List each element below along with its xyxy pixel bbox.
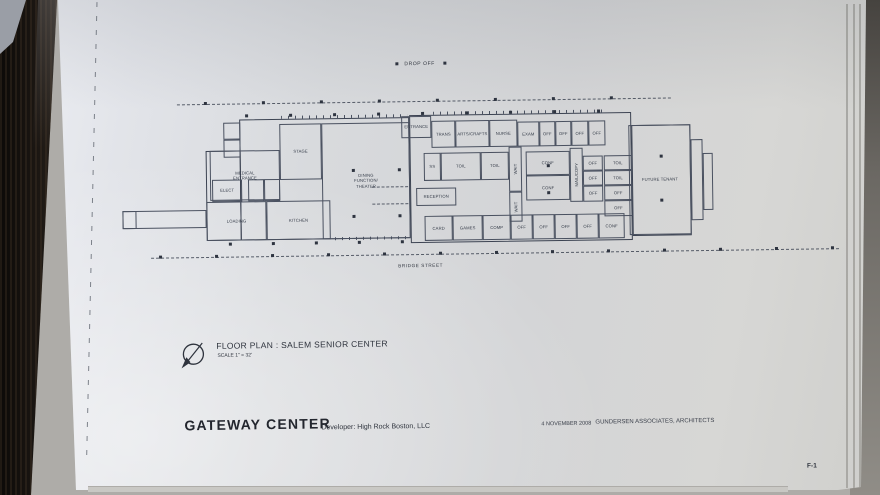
room-card: CARD [425, 216, 453, 241]
project-title: GATEWAY CENTER [184, 415, 331, 433]
room-label: OFF [592, 130, 601, 135]
room-off-t4: OFF [588, 120, 605, 145]
column-marker [775, 247, 778, 250]
room-off-r1: OFF [604, 185, 632, 200]
room-off-r2: OFF [604, 200, 632, 216]
room-off-t2: OFF [555, 121, 571, 146]
room-reception: RECEPTION [416, 187, 456, 206]
room-off-m1: OFF [583, 155, 603, 170]
column-marker [395, 62, 398, 65]
column-marker [377, 113, 380, 116]
room-toil-r2: TOIL [604, 170, 632, 185]
room-label: DINING FUNCTION/ THEATER [354, 173, 378, 188]
column-marker [495, 251, 498, 254]
room-label: OFF [589, 191, 598, 196]
column-marker [552, 97, 555, 100]
column-marker [494, 98, 497, 101]
column-marker [401, 240, 404, 243]
developer-label: Developer: High Rock Boston, LLC [321, 423, 430, 432]
column-marker [421, 112, 424, 115]
floor-plan-drawing: DROP OFF BRIDGE STREET ENTRANCETRANSARTS… [0, 0, 880, 495]
room-label: CONF [605, 223, 617, 228]
column-marker [229, 243, 232, 246]
column-marker [272, 242, 275, 245]
column-marker [547, 164, 550, 167]
room-games: GAMES [452, 215, 482, 240]
room-toil-r1: TOIL [604, 155, 632, 170]
room-off-b2: OFF [532, 214, 554, 239]
room-label: OFF [575, 131, 584, 136]
room-elect: ELECT [212, 179, 242, 201]
column-marker [597, 109, 600, 112]
date-label: 4 NOVEMBER 2008 [541, 421, 591, 428]
room-label: OFF [583, 224, 592, 229]
column-marker [553, 110, 556, 113]
room-label: EXAM [522, 131, 534, 136]
scale-label: SCALE 1" = 32' [217, 352, 252, 358]
room-label: OFF [517, 225, 526, 230]
drawing-title: FLOOR PLAN : SALEM SENIOR CENTER [216, 338, 388, 350]
room-conf-2: CONF [526, 175, 570, 201]
sheet-number: F-1 [807, 462, 817, 469]
column-marker [465, 111, 468, 114]
room-label: FUTURE TENANT [642, 177, 678, 183]
room-label: SS [429, 164, 435, 169]
room-stage: STAGE [279, 123, 322, 180]
room-label: ELECT [220, 188, 234, 193]
room-label: OFF [614, 190, 623, 195]
column-marker [159, 256, 162, 259]
room-dining: DINING FUNCTION/ THEATER [321, 122, 411, 239]
room-off-t3: OFF [571, 121, 588, 146]
room-kitchen: KITCHEN [266, 200, 331, 240]
column-marker [509, 111, 512, 114]
room-off-b3: OFF [554, 214, 576, 239]
property-line-top [177, 97, 671, 105]
room-label: TOIL [456, 164, 466, 169]
photo-of-floor-plan: DROP OFF BRIDGE STREET ENTRANCETRANSARTS… [0, 0, 880, 495]
room-label: OFF [559, 131, 568, 136]
room-trans: TRANS [431, 121, 455, 148]
street-label: BRIDGE STREET [398, 263, 443, 269]
room-label: OFF [539, 224, 548, 229]
column-marker [660, 199, 663, 202]
north-arrow-icon [177, 341, 207, 371]
room-toil-2: TOIL [481, 152, 509, 180]
room-label: OFF [614, 206, 623, 211]
room-comp: COMP [482, 215, 510, 240]
column-marker [660, 155, 663, 158]
room-mail-copy: MAIL/COPY [570, 148, 584, 202]
room-label: CARD [433, 226, 445, 231]
room-wait-1: WAIT [509, 147, 523, 192]
architect-label: GUNDERSEN ASSOCIATES, ARCHITECTS [595, 418, 714, 426]
room-toil-1: TOIL [441, 152, 481, 181]
column-marker [289, 114, 292, 117]
room-label: RECEPTION [424, 194, 449, 199]
column-marker [320, 100, 323, 103]
room-loading: LOADING [206, 201, 267, 241]
room-label: TRANS [436, 132, 451, 137]
column-marker [215, 255, 218, 258]
room-label: WAIT [513, 164, 518, 175]
room-future-tenant: FUTURE TENANT [628, 124, 692, 235]
room-exam: EXAM [517, 121, 539, 146]
room-label: ARTS/CRAFTS [457, 131, 487, 136]
column-marker [358, 241, 361, 244]
room-off-m2: OFF [583, 170, 603, 185]
room-label: COMP [490, 225, 503, 230]
room-off-t1: OFF [539, 121, 555, 146]
room-label: OFF [589, 176, 598, 181]
room-label: OFF [588, 161, 597, 166]
column-marker [378, 100, 381, 103]
room-label: WAIT [513, 201, 518, 212]
column-marker [352, 215, 355, 218]
drop-off-label: DROP OFF [404, 61, 435, 67]
room-label: MAIL/COPY [574, 163, 579, 187]
room-ss: SS [424, 153, 441, 181]
column-marker [719, 248, 722, 251]
column-marker [547, 191, 550, 194]
column-marker [262, 101, 265, 104]
column-marker [327, 253, 330, 256]
room-off-m3: OFF [583, 185, 603, 201]
column-marker [271, 254, 274, 257]
column-marker [551, 250, 554, 253]
room-label: CONF [542, 185, 554, 190]
room-label: OFF [543, 131, 552, 136]
room-label: STAGE [293, 149, 307, 154]
room-label: OFF [561, 224, 570, 229]
column-marker [439, 252, 442, 255]
vestibule-cell [223, 123, 240, 140]
column-marker [607, 249, 610, 252]
room-off-b4: OFF [576, 214, 598, 239]
column-marker [398, 214, 401, 217]
column-marker [383, 252, 386, 255]
column-marker [443, 62, 446, 65]
room-label: NURSE [496, 131, 511, 136]
room-label: TOIL [490, 163, 500, 168]
column-marker [831, 246, 834, 249]
column-marker [436, 99, 439, 102]
wing-step [690, 139, 703, 220]
room-arts-crafts: ARTS/CRAFTS [455, 120, 489, 147]
loading-dock-cap [122, 211, 136, 229]
room-conf-b: CONF [598, 213, 624, 238]
wing-step [703, 153, 714, 210]
column-marker [204, 102, 207, 105]
column-marker [352, 169, 355, 172]
column-marker [333, 113, 336, 116]
column-marker [610, 96, 613, 99]
room-label: TOIL [613, 160, 623, 165]
column-marker [663, 249, 666, 252]
room-label: LOADING [227, 218, 247, 223]
room-nurse: NURSE [489, 120, 517, 147]
column-marker [245, 114, 248, 117]
room-label: TOIL [613, 175, 623, 180]
column-marker [315, 241, 318, 244]
room-label: GAMES [460, 225, 476, 230]
room-label: KITCHEN [289, 218, 308, 223]
room-off-b1: OFF [510, 214, 532, 239]
column-marker [398, 168, 401, 171]
